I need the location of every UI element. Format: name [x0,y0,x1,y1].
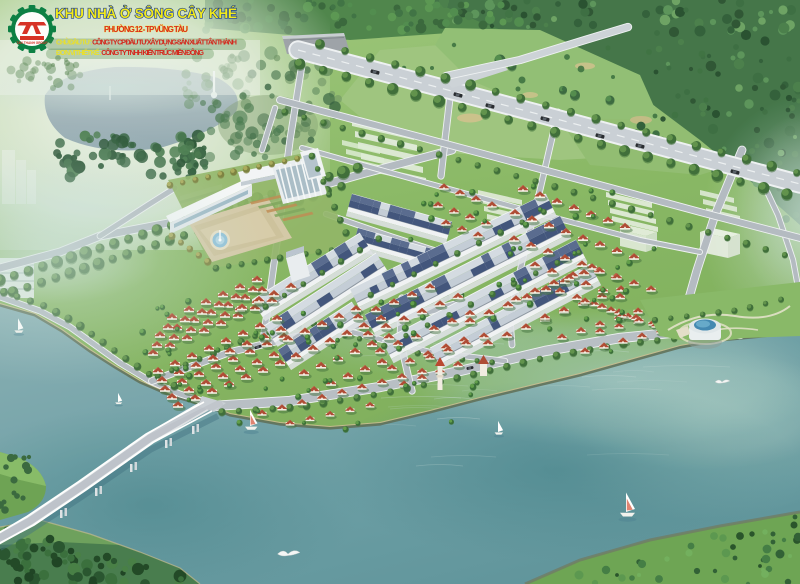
svg-text:KHU NHÀ Ở SÔNG CÂY KHÉ: KHU NHÀ Ở SÔNG CÂY KHÉ [55,6,237,21]
svg-text:CHỦ ĐẦU TƯ : CÔNG TY CP ĐẦU TƯ: CHỦ ĐẦU TƯ : CÔNG TY CP ĐẦU TƯ XÂY DỰNG-… [56,37,237,47]
svg-text:PHƯỜNG 12 - TP VŨNG TÀU: PHƯỜNG 12 - TP VŨNG TÀU [104,25,188,34]
svg-text:ĐƠN VỊ THIẾT KẾ : CÔNG TY TNHH: ĐƠN VỊ THIẾT KẾ : CÔNG TY TNHH KIẾN TRÚC… [56,47,204,57]
svg-text:TAN THANH GROUP: TAN THANH GROUP [17,41,49,45]
